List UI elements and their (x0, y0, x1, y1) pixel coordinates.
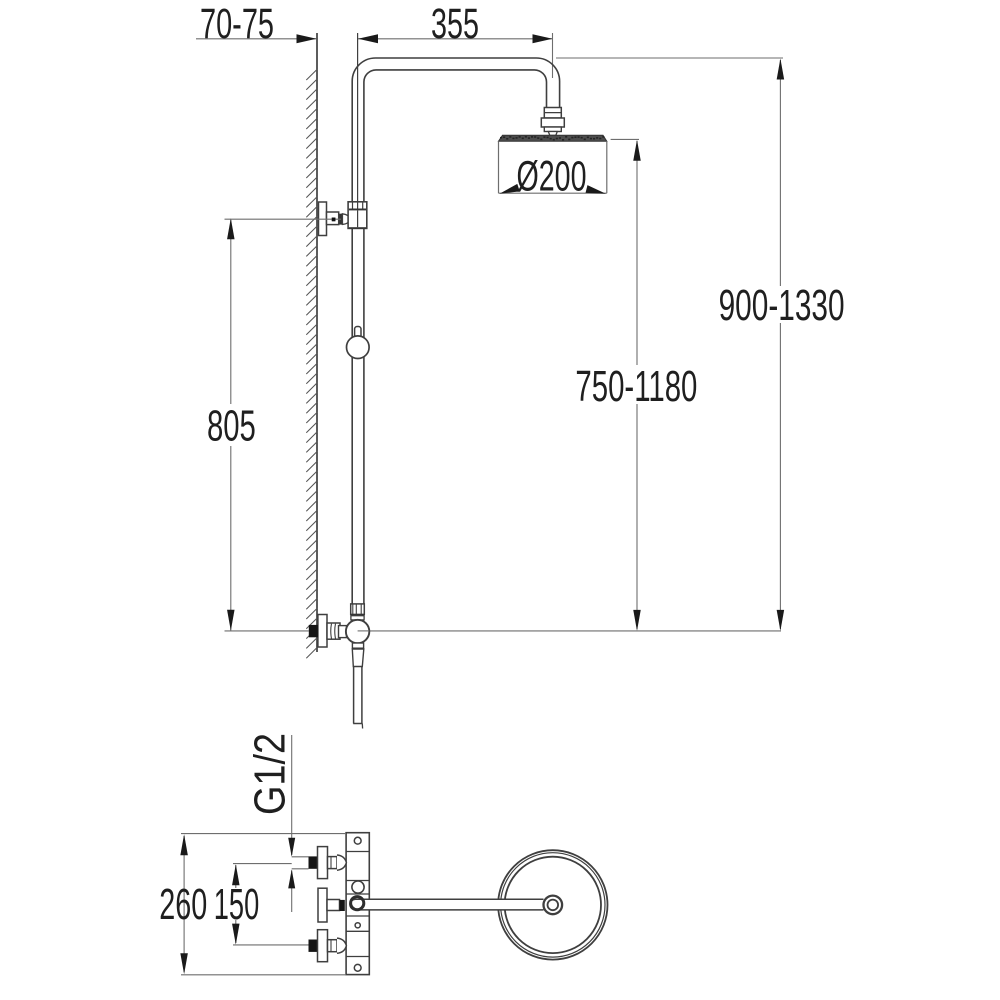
svg-text:355: 355 (431, 0, 479, 48)
svg-text:260: 260 (159, 880, 207, 929)
svg-text:70-75: 70-75 (200, 0, 274, 48)
svg-text:G1/2: G1/2 (246, 733, 295, 815)
svg-text:750-1180: 750-1180 (575, 362, 697, 411)
svg-text:150: 150 (214, 880, 260, 929)
svg-text:805: 805 (207, 402, 256, 451)
svg-text:Ø200: Ø200 (517, 153, 587, 201)
svg-text:900-1330: 900-1330 (719, 281, 845, 330)
